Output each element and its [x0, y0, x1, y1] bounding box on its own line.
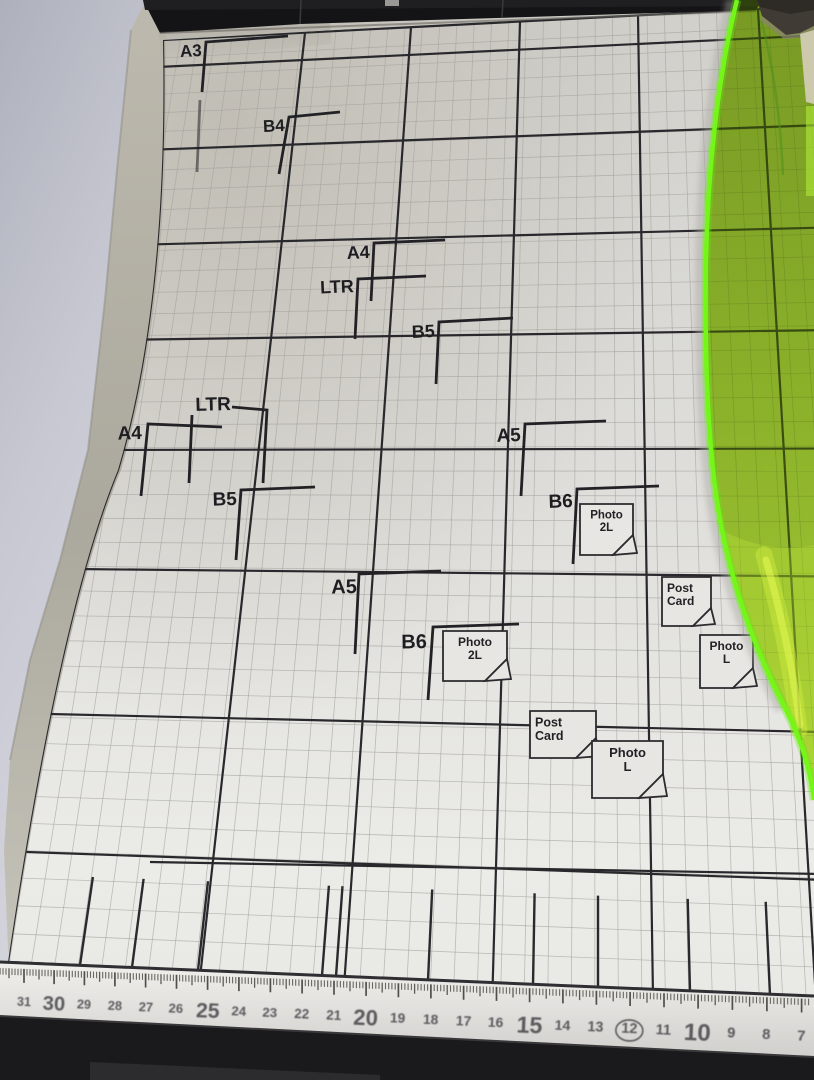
svg-text:A3: A3	[180, 41, 203, 61]
svg-text:B5: B5	[212, 489, 237, 511]
svg-text:17: 17	[456, 1012, 472, 1029]
svg-text:B6: B6	[548, 491, 573, 513]
svg-text:A5: A5	[496, 425, 521, 447]
svg-text:LTR: LTR	[320, 276, 354, 297]
svg-text:Photo: Photo	[710, 639, 744, 653]
svg-text:2L: 2L	[600, 522, 613, 534]
svg-text:26: 26	[168, 1000, 183, 1016]
svg-text:13: 13	[587, 1019, 604, 1036]
svg-text:Card: Card	[667, 594, 694, 608]
svg-text:B4: B4	[263, 116, 286, 136]
svg-text:21: 21	[326, 1007, 342, 1023]
svg-text:B6: B6	[401, 631, 427, 653]
svg-text:L: L	[723, 652, 730, 666]
svg-text:28: 28	[107, 998, 122, 1014]
svg-text:A4: A4	[117, 423, 142, 445]
svg-text:Photo: Photo	[609, 745, 646, 760]
svg-text:14: 14	[554, 1018, 571, 1035]
svg-text:12: 12	[621, 1021, 638, 1038]
svg-text:22: 22	[294, 1006, 310, 1022]
svg-text:20: 20	[353, 1005, 379, 1031]
svg-text:10: 10	[683, 1019, 711, 1047]
svg-text:30: 30	[42, 993, 65, 1016]
svg-text:23: 23	[262, 1005, 277, 1021]
svg-text:11: 11	[655, 1022, 671, 1039]
svg-text:29: 29	[77, 997, 92, 1012]
svg-text:Post: Post	[667, 581, 693, 595]
svg-text:31: 31	[17, 995, 32, 1010]
svg-text:B5: B5	[411, 321, 435, 342]
svg-text:LTR: LTR	[195, 394, 231, 416]
svg-text:19: 19	[390, 1010, 406, 1026]
svg-text:15: 15	[516, 1011, 543, 1038]
svg-text:Photo: Photo	[590, 510, 623, 522]
svg-text:18: 18	[423, 1012, 439, 1028]
svg-text:Card: Card	[535, 729, 563, 743]
svg-text:25: 25	[195, 999, 220, 1023]
svg-text:A4: A4	[346, 242, 370, 263]
svg-text:24: 24	[231, 1003, 247, 1019]
svg-text:A5: A5	[331, 576, 357, 598]
svg-text:Post: Post	[535, 716, 563, 730]
svg-text:L: L	[624, 759, 632, 774]
svg-text:27: 27	[138, 999, 153, 1015]
svg-text:16: 16	[487, 1014, 503, 1031]
svg-text:2L: 2L	[468, 648, 482, 662]
svg-text:7: 7	[797, 1028, 806, 1044]
svg-text:8: 8	[762, 1027, 771, 1043]
svg-text:9: 9	[727, 1025, 736, 1041]
svg-text:Photo: Photo	[458, 635, 492, 649]
